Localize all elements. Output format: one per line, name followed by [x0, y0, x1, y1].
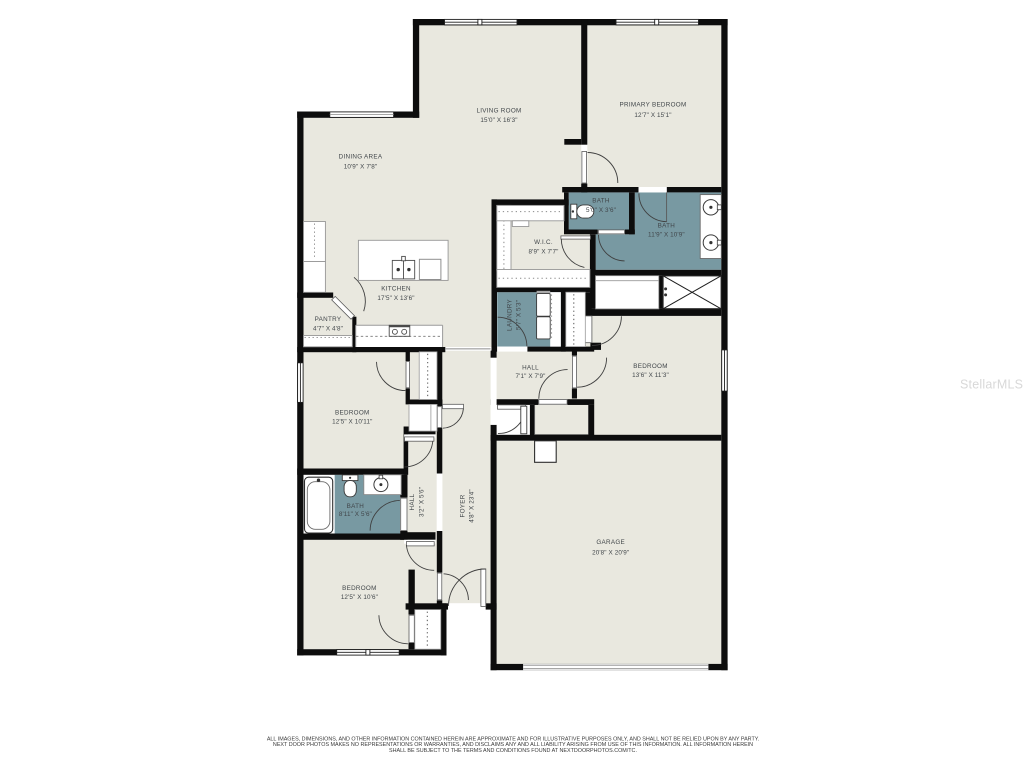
svg-text:SHALL BE SUBJECT TO THE TERMS: SHALL BE SUBJECT TO THE TERMS AND CONDIT…: [389, 748, 637, 754]
svg-text:BEDROOM: BEDROOM: [335, 410, 370, 417]
svg-text:LAUNDRY: LAUNDRY: [507, 299, 514, 331]
svg-text:8'9" X 7'7": 8'9" X 7'7": [529, 248, 559, 255]
svg-text:KITCHEN: KITCHEN: [381, 285, 411, 292]
svg-text:W.I.C.: W.I.C.: [534, 239, 553, 246]
svg-text:GARAGE: GARAGE: [596, 539, 625, 546]
svg-text:FOYER: FOYER: [459, 494, 466, 517]
svg-text:5'0" X 3'6": 5'0" X 3'6": [586, 207, 616, 214]
svg-text:DINING AREA: DINING AREA: [339, 153, 383, 160]
svg-text:4'7" X 4'8": 4'7" X 4'8": [313, 325, 343, 332]
svg-text:5'7" X 5'3": 5'7" X 5'3": [515, 300, 522, 330]
svg-text:HALL: HALL: [522, 364, 539, 371]
svg-text:8'11" X 5'6": 8'11" X 5'6": [339, 511, 372, 518]
svg-text:7'1" X 7'9": 7'1" X 7'9": [516, 373, 546, 380]
svg-text:BATH: BATH: [347, 503, 365, 510]
svg-text:20'8" X 20'9": 20'8" X 20'9": [592, 549, 629, 556]
svg-text:15'0" X 16'3": 15'0" X 16'3": [480, 117, 517, 124]
svg-text:BEDROOM: BEDROOM: [342, 585, 377, 592]
svg-text:StellarMLS: StellarMLS: [960, 378, 1023, 392]
svg-text:HALL: HALL: [409, 493, 416, 510]
svg-text:13'6" X 11'3": 13'6" X 11'3": [632, 372, 669, 379]
svg-text:17'5" X 13'6": 17'5" X 13'6": [377, 295, 414, 302]
svg-text:PANTRY: PANTRY: [315, 316, 342, 323]
svg-text:BATH: BATH: [592, 197, 610, 204]
svg-text:BEDROOM: BEDROOM: [633, 363, 668, 370]
svg-text:12'5" X 10'6": 12'5" X 10'6": [341, 594, 378, 601]
svg-text:12'7" X 15'1": 12'7" X 15'1": [634, 112, 671, 119]
svg-text:BATH: BATH: [658, 222, 676, 229]
svg-text:LIVING ROOM: LIVING ROOM: [476, 108, 521, 115]
svg-text:4'8" X 23'4": 4'8" X 23'4": [469, 489, 476, 523]
svg-text:PRIMARY BEDROOM: PRIMARY BEDROOM: [620, 101, 687, 108]
svg-text:11'9" X 10'9": 11'9" X 10'9": [648, 231, 685, 238]
svg-text:10'9" X 7'8": 10'9" X 7'8": [344, 163, 378, 170]
svg-text:12'5" X 10'11": 12'5" X 10'11": [332, 418, 372, 425]
svg-text:3'2" X 5'6": 3'2" X 5'6": [418, 487, 425, 517]
